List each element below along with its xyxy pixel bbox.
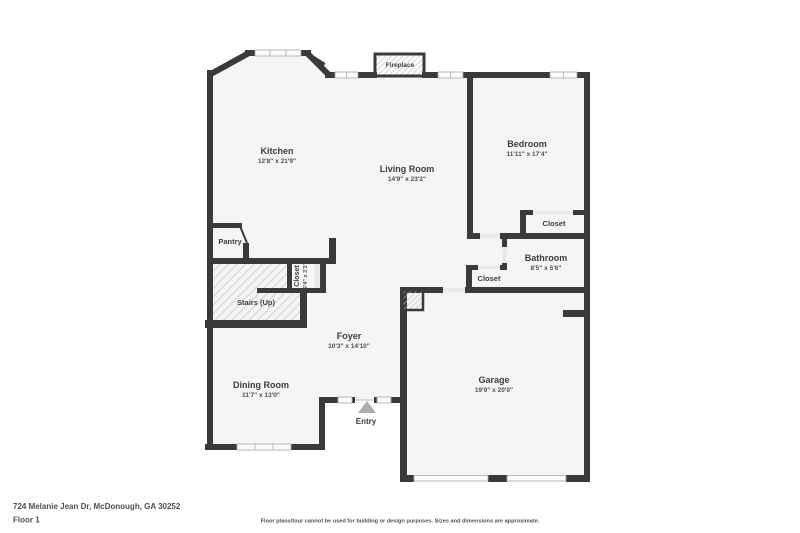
hall-closet-door [478, 266, 500, 269]
garage-door-left [414, 476, 488, 482]
footer-address: 724 Melanie Jean Dr, McDonough, GA 30252 [13, 502, 181, 511]
garage-door-right [507, 476, 566, 482]
foyer-label: Foyer [337, 331, 362, 341]
garage-dims: 19'9" x 20'0" [475, 387, 513, 394]
stairs-closet-label: Closet [294, 265, 301, 287]
footer-disclaimer: Floor plans/tour cannot be used for buil… [261, 519, 540, 525]
entry-sidelight-right [377, 397, 391, 403]
kitchen-label: Kitchen [260, 146, 293, 156]
living-room-label: Living Room [380, 164, 435, 174]
bay-window [255, 50, 301, 56]
bathroom-label: Bathroom [525, 253, 568, 263]
garage-entry-door [443, 288, 465, 292]
hall-closet-label: Closet [478, 274, 501, 283]
dining-room-label: Dining Room [233, 380, 289, 390]
footer-floor-label: Floor 1 [13, 516, 40, 525]
stairs-closet-door [315, 263, 321, 288]
garage-steps [402, 290, 423, 310]
bedroom-label: Bedroom [507, 139, 547, 149]
pantry-wall [207, 223, 242, 228]
fireplace: Fireplace [375, 54, 424, 76]
kitchen-dims: 12'8" x 21'9" [258, 158, 296, 165]
bathroom-dims: 8'5" x 5'6" [531, 265, 562, 272]
bedroom-door [480, 234, 500, 238]
entry-arrow-icon [358, 401, 376, 413]
living-room-dims: 14'9" x 23'2" [388, 176, 426, 183]
pantry-label: Pantry [218, 237, 242, 246]
entry-sidelight-left [338, 397, 352, 403]
garage-stub-wall [563, 310, 584, 317]
footer: 724 Melanie Jean Dr, McDonough, GA 30252… [13, 502, 540, 525]
dining-room-window [237, 444, 291, 450]
floor-plan-canvas: Fireplace Kitchen 12'8" x 21'9" Living R… [0, 0, 800, 533]
stairs-closet-dims: 2'4" x 3'3" [303, 263, 309, 290]
garage-label: Garage [478, 375, 509, 385]
front-door-opening [355, 399, 374, 400]
bedroom-closet-door [533, 211, 573, 215]
foyer-dims: 10'3" x 14'10" [328, 343, 370, 350]
fireplace-label: Fireplace [386, 62, 415, 69]
floor-plan-page: Fireplace Kitchen 12'8" x 21'9" Living R… [0, 0, 800, 533]
bedroom-dims: 11'11" x 17'4" [506, 151, 547, 158]
stairs-label: Stairs (Up) [237, 298, 275, 307]
dining-room-dims: 11'7" x 13'0" [242, 392, 280, 399]
bedroom-closet-label: Closet [543, 219, 566, 228]
bathroom-door [503, 247, 507, 263]
entry-label: Entry [356, 417, 377, 426]
